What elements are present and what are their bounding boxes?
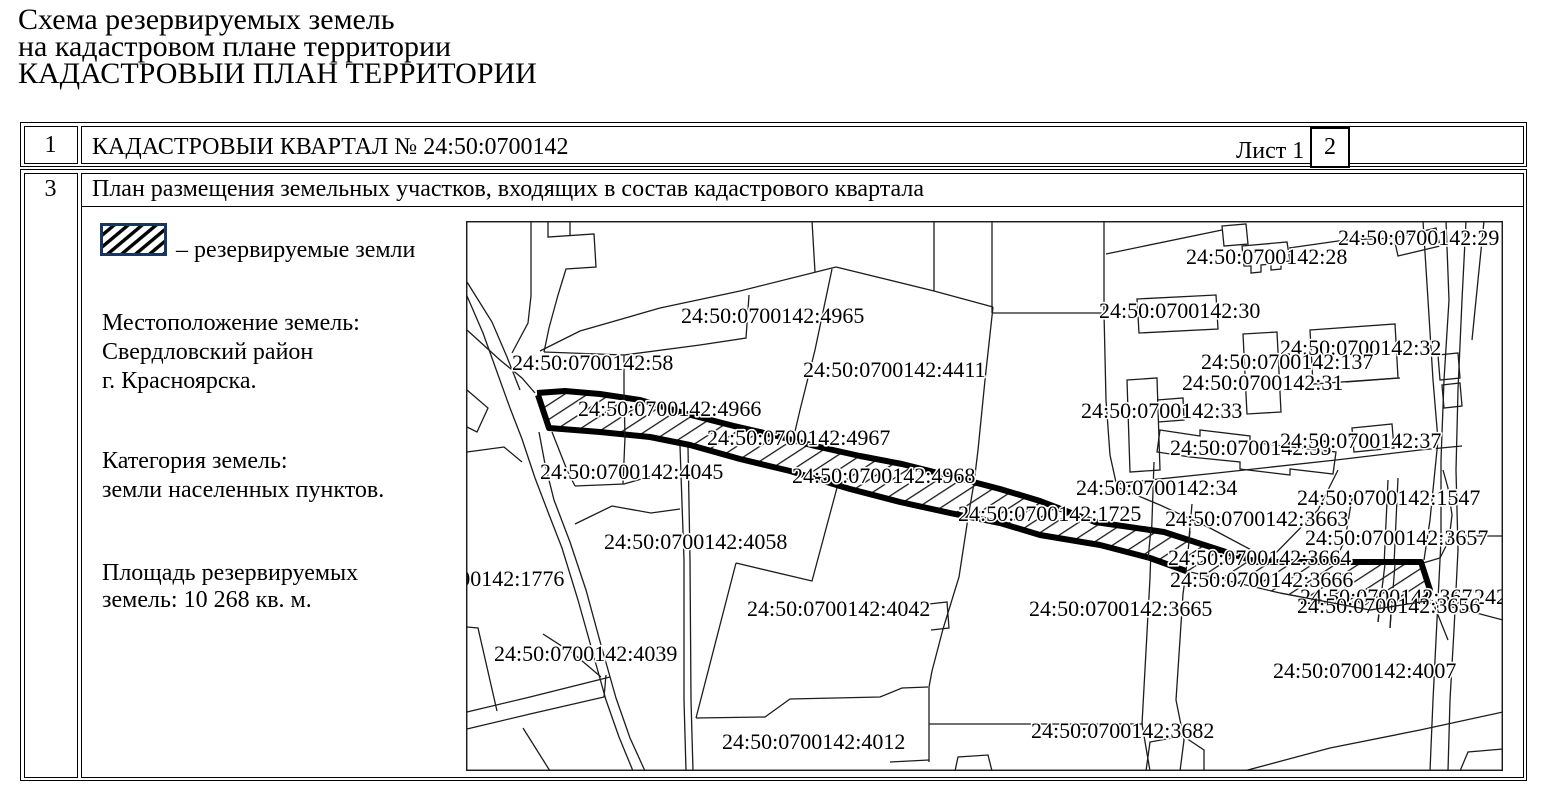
svg-text:24:50:0700142:4411: 24:50:0700142:4411 — [803, 357, 986, 382]
svg-text:24:50:0700142:1776: 24:50:0700142:1776 — [466, 566, 564, 591]
svg-text:24:50:0700142:33: 24:50:0700142:33 — [1081, 398, 1242, 423]
svg-text:24:50:0700142:37: 24:50:0700142:37 — [1280, 428, 1441, 453]
svg-text:24:50:0700142:29: 24:50:0700142:29 — [1338, 225, 1499, 250]
svg-text:24:50:0700142:4012: 24:50:0700142:4012 — [722, 729, 905, 754]
svg-text:24:50:0700142:4007: 24:50:0700142:4007 — [1273, 658, 1456, 683]
svg-text:24:50:0700142:1725: 24:50:0700142:1725 — [958, 501, 1141, 526]
svg-text:24:50:0700142:4968: 24:50:0700142:4968 — [792, 463, 975, 488]
svg-text:24:50:0700142:3656: 24:50:0700142:3656 — [1297, 593, 1480, 618]
svg-text:24:50:0700142:3665: 24:50:0700142:3665 — [1029, 596, 1212, 621]
svg-text:24:50:0700142:4058: 24:50:0700142:4058 — [604, 529, 787, 554]
svg-text:24:50:0700142:4965: 24:50:0700142:4965 — [681, 303, 864, 328]
svg-text:24:50:0700142:4039: 24:50:0700142:4039 — [494, 641, 677, 666]
svg-text:24:50:0700142:34: 24:50:0700142:34 — [1076, 475, 1237, 500]
svg-text:24:50:0700142:4967: 24:50:0700142:4967 — [707, 425, 890, 450]
svg-text:24:50:0700142:58: 24:50:0700142:58 — [512, 350, 673, 375]
svg-text:24:50:0700142:1547: 24:50:0700142:1547 — [1297, 485, 1480, 510]
svg-text:24:50:0700142:4966: 24:50:0700142:4966 — [578, 396, 761, 421]
svg-text:24:50:0700142:28: 24:50:0700142:28 — [1186, 244, 1347, 269]
svg-text:24:50:0700142:4042: 24:50:0700142:4042 — [747, 596, 930, 621]
svg-text:24:50:0700142:31: 24:50:0700142:31 — [1182, 370, 1343, 395]
svg-text:24:50:0700142:3682: 24:50:0700142:3682 — [1031, 718, 1214, 743]
svg-text:24:50:0700142:30: 24:50:0700142:30 — [1099, 298, 1260, 323]
svg-text:24:50:0700142:4045: 24:50:0700142:4045 — [540, 459, 723, 484]
